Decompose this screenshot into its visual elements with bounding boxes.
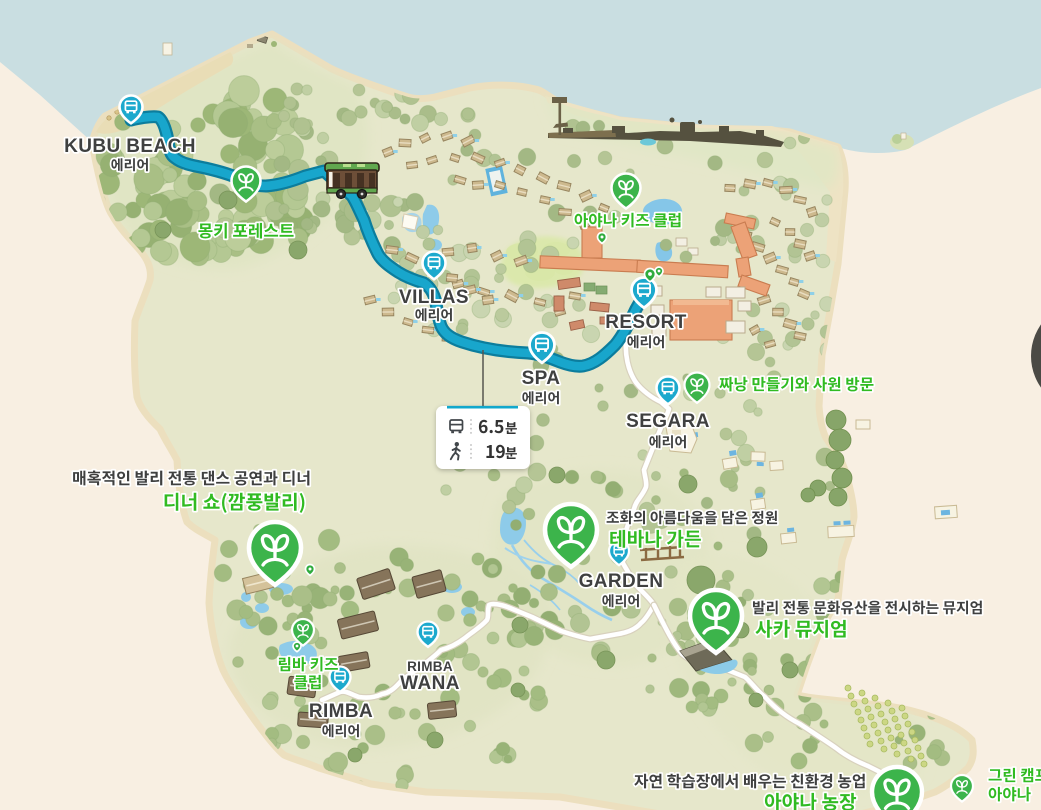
- svg-text:VILLAS: VILLAS: [399, 287, 469, 308]
- svg-text:KUBU BEACH: KUBU BEACH: [64, 136, 196, 157]
- svg-text:SEGARA: SEGARA: [626, 411, 710, 432]
- svg-text:RIMBA: RIMBA: [309, 701, 373, 722]
- svg-text:GARDEN: GARDEN: [579, 571, 664, 592]
- svg-text:RESORT: RESORT: [605, 312, 687, 333]
- svg-text:RIMBA: RIMBA: [407, 659, 453, 674]
- svg-text:SPA: SPA: [522, 368, 561, 389]
- svg-text:WANA: WANA: [400, 673, 460, 694]
